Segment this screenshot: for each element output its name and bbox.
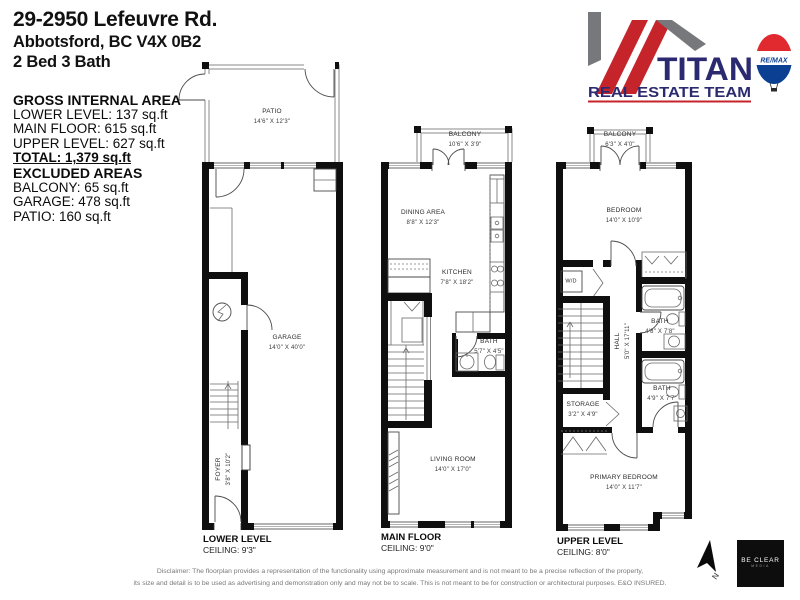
room-label-bedroom: BEDROOM14'0" X 10'9" [606,206,643,226]
cooktop-icon [490,262,504,292]
toilet-icon [679,385,685,399]
room-label-foyer: FOYER3'8" X 10'2" [214,453,234,486]
electrical-panel-icon [213,303,231,321]
beclear-logo: BE CLEAR MEDIA [737,540,784,587]
main-ceiling-label: CEILING: 9'0" [381,543,434,553]
room-label-wd: W/D [565,279,576,286]
beclear-name: BE CLEAR [737,557,784,564]
foyer-garage-door [242,445,250,470]
bedroom-closet [642,252,686,278]
toilet-icon [679,312,685,326]
beclear-sub: MEDIA [737,564,784,568]
room-label-storage: STORAGE3'2" X 4'9" [566,400,599,420]
room-label-dining: DINING AREA8'8" X 12'3" [401,208,445,228]
north-label: N [710,571,721,581]
floor-plans-graphic [0,0,800,600]
main-stairs [388,259,432,428]
upper-ceiling-label: CEILING: 8'0" [557,547,610,557]
upper-bottom-windows [568,512,684,531]
wall-oven-icon [491,217,503,242]
main-floor-label: MAIN FLOOR [381,532,441,543]
bathtub-icon [642,360,684,383]
room-label-bath1: BATH4'8" X 7'8" [645,317,674,337]
room-label-primary-bedroom: PRIMARY BEDROOM14'0" X 11'7" [590,473,658,493]
lower-level-label: LOWER LEVEL [203,534,272,545]
room-label-main-bath: BATH5'7" X 4'5" [474,337,503,357]
room-label-living: LIVING ROOM14'0" X 17'0" [430,455,476,475]
room-label-kitchen: KITCHEN7'8" X 18'2" [441,268,474,288]
floorplan-page: 29-2950 Lefeuvre Rd. Abbotsford, BC V4X … [0,0,800,600]
upper-level-label: UPPER LEVEL [557,536,623,547]
lower-stairs [210,381,238,429]
toilet-icon [485,355,505,370]
upper-stairs [558,303,603,388]
disclaimer-text: Disclaimer: The floorplan provides a rep… [0,566,800,589]
kitchen-counter [456,175,504,332]
lower-ceiling-label: CEILING: 9'3" [203,545,256,555]
main-balcony-doors [432,149,465,171]
room-label-upper-balcony: BALCONY6'3" X 4'0" [604,130,636,150]
north-arrow-icon: N [694,538,724,586]
main-bottom-windows [390,521,500,528]
primary-closet [561,431,607,454]
room-label-bath2: BATH4'9" X 7'7" [647,384,676,404]
room-label-main-balcony: BALCONY10'6" X 3'9" [449,130,482,150]
garage-door [254,523,333,530]
fireplace-media-unit [388,432,399,514]
room-label-hall: HALL5'0" X 17'11" [613,323,633,359]
lower-top-windows [214,162,316,169]
room-label-garage: GARAGE14'0" X 40'0" [269,333,306,353]
lower-level-plan [179,62,343,530]
room-label-patio: PATIO14'6" X 12'3" [254,107,291,127]
